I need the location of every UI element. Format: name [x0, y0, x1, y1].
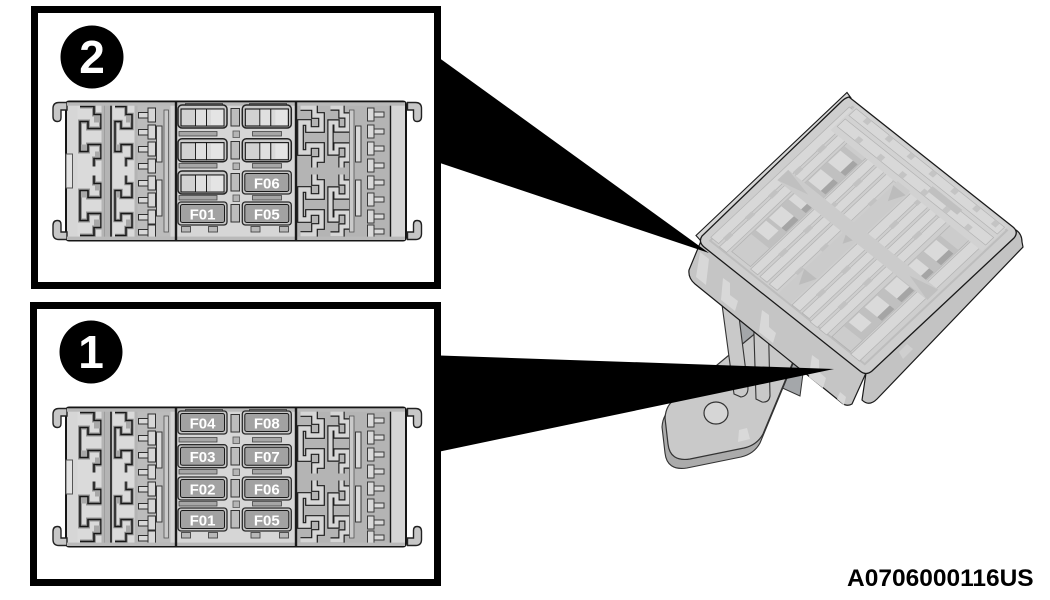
svg-text:F03: F03: [190, 449, 216, 466]
svg-text:F01: F01: [190, 207, 216, 224]
svg-text:F05: F05: [254, 513, 280, 530]
svg-text:F02: F02: [190, 482, 216, 499]
svg-text:F06: F06: [254, 176, 280, 193]
svg-text:2: 2: [79, 31, 105, 83]
svg-text:F08: F08: [254, 416, 280, 433]
svg-text:F07: F07: [254, 449, 280, 466]
svg-text:1: 1: [78, 326, 104, 378]
svg-text:F01: F01: [190, 513, 216, 530]
svg-text:A0706000116US: A0706000116US: [847, 565, 1034, 592]
svg-text:F06: F06: [254, 482, 280, 499]
svg-text:F05: F05: [254, 207, 280, 224]
svg-text:F04: F04: [190, 416, 217, 433]
